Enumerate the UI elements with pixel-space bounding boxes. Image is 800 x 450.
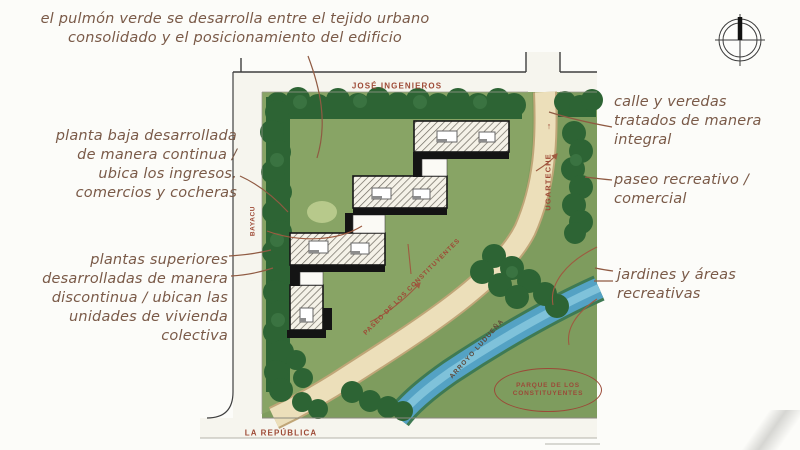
scan-artifact: [718, 410, 800, 450]
street-label-ugarteche: UGARTECHE: [544, 153, 553, 210]
park-label-constituyentes: PARQUE DE LOS CONSTITUYENTES: [494, 368, 602, 412]
street-label-la-republica: LA REPÚBLICA: [245, 429, 317, 438]
street-label-bayacu: BAYACU: [250, 206, 257, 236]
site-plan: [0, 0, 800, 450]
street-label-jose-ingenieros: JOSÉ INGENIEROS: [352, 82, 442, 91]
annotation-gardens: jardines y áreas recreativas: [617, 266, 777, 304]
building-3: [290, 233, 385, 265]
building-2: [353, 176, 447, 208]
annotation-street-sidewalks: calle y veredas tratados de manera integ…: [614, 93, 774, 150]
annotation-upper-floors: plantas superiores desarrolladas de mane…: [30, 251, 228, 346]
compass-icon: [715, 14, 765, 66]
annotation-green-lung: el pulmón verde se desarrolla entre el t…: [40, 10, 430, 48]
slide-canvas: el pulmón verde se desarrolla entre el t…: [0, 0, 800, 450]
annotation-promenade: paseo recreativo / comercial: [614, 171, 774, 209]
annotation-ground-floor: planta baja desarrollada de manera conti…: [35, 127, 237, 203]
up-arrow-icon: ↑: [547, 121, 552, 131]
